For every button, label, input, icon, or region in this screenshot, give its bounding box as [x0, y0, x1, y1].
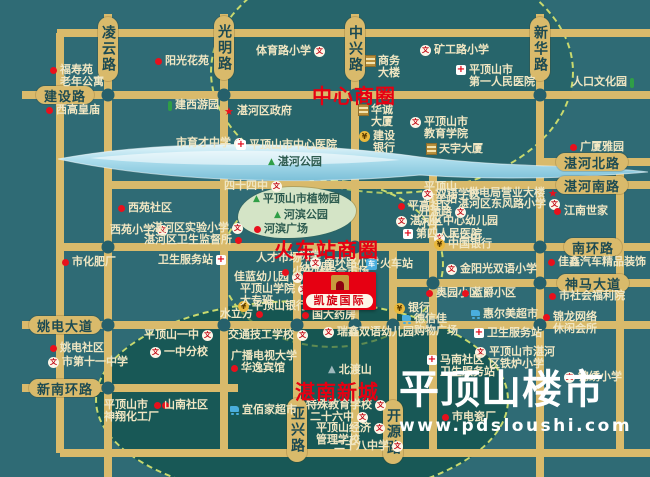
road-name-label: 湛河北路	[556, 153, 628, 171]
road-intersection	[534, 241, 547, 254]
road-name-label: 姚电大道	[29, 316, 101, 334]
landmark-label: 福寿苑老年公寓	[60, 64, 104, 89]
red-dot-icon	[570, 144, 577, 151]
landmark-label: 平高社区	[408, 200, 452, 212]
map-landmark: 金阳光双语小学	[446, 263, 537, 275]
school-icon	[150, 347, 161, 358]
cart-icon	[402, 315, 411, 321]
map-landmark: 国大药房	[302, 309, 356, 321]
school-icon	[323, 327, 334, 338]
map-landmark: 锦龙网络休闲会所	[543, 311, 597, 336]
school-icon	[202, 330, 213, 341]
map-landmark: 惠尔美超市	[471, 308, 538, 320]
map-landmark: 卫生服务站	[158, 254, 226, 266]
red-dot-icon	[50, 67, 57, 74]
map-landmark: 江南世家	[554, 205, 608, 217]
map-landmark: 平顶山一中	[144, 329, 213, 341]
school-icon	[410, 117, 421, 128]
landmark-label: 体育路小学	[256, 45, 311, 57]
hospital-icon	[236, 140, 246, 150]
red-dot-icon	[426, 290, 433, 297]
hospital-icon	[403, 229, 413, 239]
red-dot-icon	[549, 293, 556, 300]
business-zone-label: 中心商圈	[312, 80, 396, 109]
map-landmark: 天宇大厦	[427, 143, 483, 155]
map-landmark: 湛河区东风路小学	[458, 198, 560, 210]
road-intersection	[102, 319, 115, 332]
red-dot-icon	[462, 290, 469, 297]
cart-icon	[230, 406, 239, 412]
red-dot-icon	[118, 205, 125, 212]
landmark-label: 锦龙网络休闲会所	[553, 311, 597, 336]
map-landmark: 佳鑫汽车精品装饰	[548, 256, 646, 268]
road-intersection	[102, 382, 115, 395]
map-landmark: 市化肥厂	[62, 256, 116, 268]
red-dot-icon	[155, 58, 162, 65]
building-icon	[366, 56, 375, 66]
red-dot-icon	[282, 269, 289, 276]
landmark-label: 平顶山学院大专班	[240, 283, 295, 308]
bank-icon	[359, 131, 370, 142]
red-dot-icon	[254, 226, 261, 233]
road-name-label: 新南环路	[29, 379, 101, 397]
map-landmark: 平高社区	[398, 200, 452, 212]
map-landmark: 二十八中学	[334, 440, 403, 452]
map-landmark: 卫生服务站	[474, 327, 542, 339]
red-dot-icon	[554, 208, 561, 215]
hospital-icon	[456, 65, 466, 75]
map-landmark: 市育才中学	[176, 137, 245, 149]
business-zone-label: 湛南新城	[295, 376, 379, 405]
landmark-label: 德信佳购物广场	[414, 313, 458, 338]
landmark-label: 阳光花苑	[165, 55, 209, 67]
map-landmark: 市第十一中学	[48, 356, 128, 368]
landmark-label: 金阳光双语小学	[460, 263, 537, 275]
landmark-label: 惠尔美超市	[483, 308, 538, 320]
logo-url[interactable]: www.pdsloushi.com	[399, 416, 649, 436]
park-icon	[168, 101, 172, 111]
map-landmark: 平顶山市教育学院	[410, 116, 468, 141]
map-landmark: 一中分校	[150, 346, 208, 358]
map-landmark: 建设银行	[359, 130, 395, 155]
building-icon	[427, 144, 436, 154]
school-icon	[420, 45, 431, 56]
landmark-label: 建西游园	[175, 99, 219, 111]
triumphal-arch-icon	[331, 275, 349, 290]
school-icon	[446, 264, 457, 275]
park-icon	[630, 78, 634, 88]
landmark-label: 广厦雅园	[580, 141, 624, 153]
map-landmark: 华逸宾馆	[231, 362, 285, 374]
map-landmark: 平顶山市中心医院	[236, 139, 337, 151]
landmark-label: 华逸宾馆	[241, 362, 285, 374]
landmark-label: 湛河区中心幼儿园	[410, 215, 498, 227]
red-dot-icon	[62, 259, 69, 266]
road-name-label: 湛河南路	[556, 176, 628, 194]
school-icon	[48, 357, 59, 368]
map-landmark: 平顶山市植物园	[253, 193, 340, 205]
landmark-label: 平顶山市植物园	[263, 193, 340, 205]
road-intersection	[102, 241, 115, 254]
landmark-label: 河滨公园	[284, 209, 328, 221]
map-canvas: 凌云路光明路中兴路新华路亚兴路开源路建设路姚电大道新南环路湛河北路湛河南路南环路…	[0, 0, 650, 477]
red-dot-icon	[398, 203, 405, 210]
map-landmark: 湛河区中心幼儿园	[396, 215, 498, 227]
landmark-label: 姚电社区	[60, 342, 104, 354]
map-landmark: 湛河区卫生监督所	[144, 234, 242, 246]
hospital-icon	[474, 328, 484, 338]
landmark-label: 湛河区政府	[237, 105, 292, 117]
map-landmark: 湛河公园	[268, 156, 322, 168]
landmark-label: 瑞鑫双语幼儿园	[337, 326, 414, 338]
school-icon	[374, 423, 385, 434]
map-landmark: 商务大楼	[366, 55, 400, 80]
landmark-label: 国大药房	[312, 309, 356, 321]
map-landmark: 中国银行	[434, 238, 492, 250]
site-logo: 平顶山楼市 www.pdsloushi.com	[399, 369, 649, 436]
map-landmark: 北渡山	[328, 364, 372, 376]
landmark-label: 平顶山市第一人民医院	[469, 64, 535, 89]
map-landmark: 平顶山市第一人民医院	[456, 64, 535, 89]
landmark-label: 卫生服务站	[158, 254, 213, 266]
map-landmark: 四十四中	[224, 180, 282, 192]
landmark-label: 人口文化园	[572, 76, 627, 88]
school-icon	[396, 216, 407, 227]
landmark-label: 西苑社区	[128, 202, 172, 214]
road-name-label: 光明路	[214, 16, 234, 80]
landmark-label: 平顶山市中心医院	[249, 139, 337, 151]
landmark-label: 建设银行	[373, 130, 395, 155]
map-landmark: 蓝爵小区	[462, 287, 516, 299]
logo-title: 平顶山楼市	[399, 369, 649, 411]
landmark-label: 湛河公园	[278, 156, 322, 168]
map-landmark: 广厦雅园	[570, 141, 624, 153]
road-intersection	[534, 89, 547, 102]
landmark-label: 平顶山市教育学院	[424, 116, 468, 141]
red-dot-icon	[548, 259, 555, 266]
landmark-label: 佳鑫汽车精品装饰	[558, 256, 646, 268]
school-icon	[297, 330, 308, 341]
project-marker[interactable]: 凯旋国际	[303, 272, 376, 310]
school-icon	[232, 223, 243, 234]
landmark-label: 天宇大厦	[439, 143, 483, 155]
landmark-label: 中国银行	[448, 238, 492, 250]
road-intersection	[218, 89, 231, 102]
map-landmark: 平顶山学院大专班	[240, 283, 309, 308]
landmark-label: 山南社区	[164, 399, 208, 411]
landmark-label: 二十八中学	[334, 440, 389, 452]
landmark-label: 交通技工学校	[228, 329, 294, 341]
map-landmark: 建西游园	[168, 99, 219, 111]
map-landmark: 市社会福利院	[549, 290, 625, 302]
tree-icon	[253, 194, 260, 204]
landmark-label: 西高皇庙	[56, 104, 100, 116]
road-name-label: 南环路	[564, 238, 622, 256]
landmark-label: 卫生服务站	[487, 327, 542, 339]
landmark-label: 市第十一中学	[62, 356, 128, 368]
map-landmark: 瑞鑫双语幼儿园	[323, 326, 414, 338]
red-dot-icon	[50, 345, 57, 352]
landmark-label: 湛河区东风路小学	[458, 198, 546, 210]
map-landmark: 河滨公园	[274, 209, 328, 221]
road-name-label: 建设路	[36, 86, 94, 104]
tree-icon	[274, 210, 281, 220]
school-icon	[271, 181, 282, 192]
map-landmark: 阳光花苑	[155, 55, 209, 67]
map-landmark: 体育路小学	[256, 45, 325, 57]
map-landmark: 湛河区政府	[224, 105, 292, 117]
star-icon	[224, 106, 234, 117]
red-dot-icon	[231, 365, 238, 372]
landmark-label: 北渡山	[339, 364, 372, 376]
map-landmark: 西苑社区	[118, 202, 172, 214]
map-landmark: 姚电社区	[50, 342, 104, 354]
map-landmark: 宜佰家超市	[230, 404, 297, 416]
landmark-label: 市社会福利院	[559, 290, 625, 302]
red-dot-icon	[543, 314, 550, 321]
road-intersection	[534, 277, 547, 290]
landmark-label: 市化肥厂	[72, 256, 116, 268]
school-icon	[392, 441, 403, 452]
landmark-label: 江南世家	[564, 205, 608, 217]
landmark-label: 火车站	[380, 258, 413, 270]
landmark-label: 商务大楼	[378, 55, 400, 80]
map-landmark: 福寿苑老年公寓	[50, 64, 104, 89]
landmark-label: 矿工路小学	[434, 44, 489, 56]
red-dot-icon	[46, 107, 53, 114]
tree-icon	[268, 157, 275, 167]
landmark-label: 蓝爵小区	[472, 287, 516, 299]
landmark-label: 平顶山一中	[144, 329, 199, 341]
red-dot-icon	[154, 402, 161, 409]
landmark-label: 湛河区卫生监督所	[144, 234, 232, 246]
map-landmark: 交通技工学校	[228, 329, 308, 341]
landmark-label: 市育才中学	[176, 137, 231, 149]
hospital-icon	[216, 255, 226, 265]
landmark-label: 平顶山市神翔化工厂	[104, 399, 159, 424]
landmark-label: 四十四中	[224, 180, 268, 192]
map-landmark: 人口文化园	[572, 76, 634, 88]
road-name-label: 中兴路	[345, 17, 365, 81]
red-dot-icon	[302, 312, 309, 319]
hospital-icon	[427, 355, 437, 365]
map-landmark: 西高皇庙	[46, 104, 100, 116]
map-landmark: 山南社区	[154, 399, 208, 411]
landmark-label: 宜佰家超市	[242, 404, 297, 416]
business-zone-label: 火车站商圈	[274, 234, 379, 263]
map-landmark: 矿工路小学	[420, 44, 489, 56]
mountain-icon	[328, 365, 336, 375]
red-dot-icon	[235, 237, 242, 244]
bank-icon	[434, 239, 445, 250]
landmark-label: 一中分校	[164, 346, 208, 358]
road-intersection	[102, 89, 115, 102]
project-name: 凯旋国际	[306, 294, 373, 308]
school-icon	[314, 46, 325, 57]
cart-icon	[471, 310, 480, 316]
